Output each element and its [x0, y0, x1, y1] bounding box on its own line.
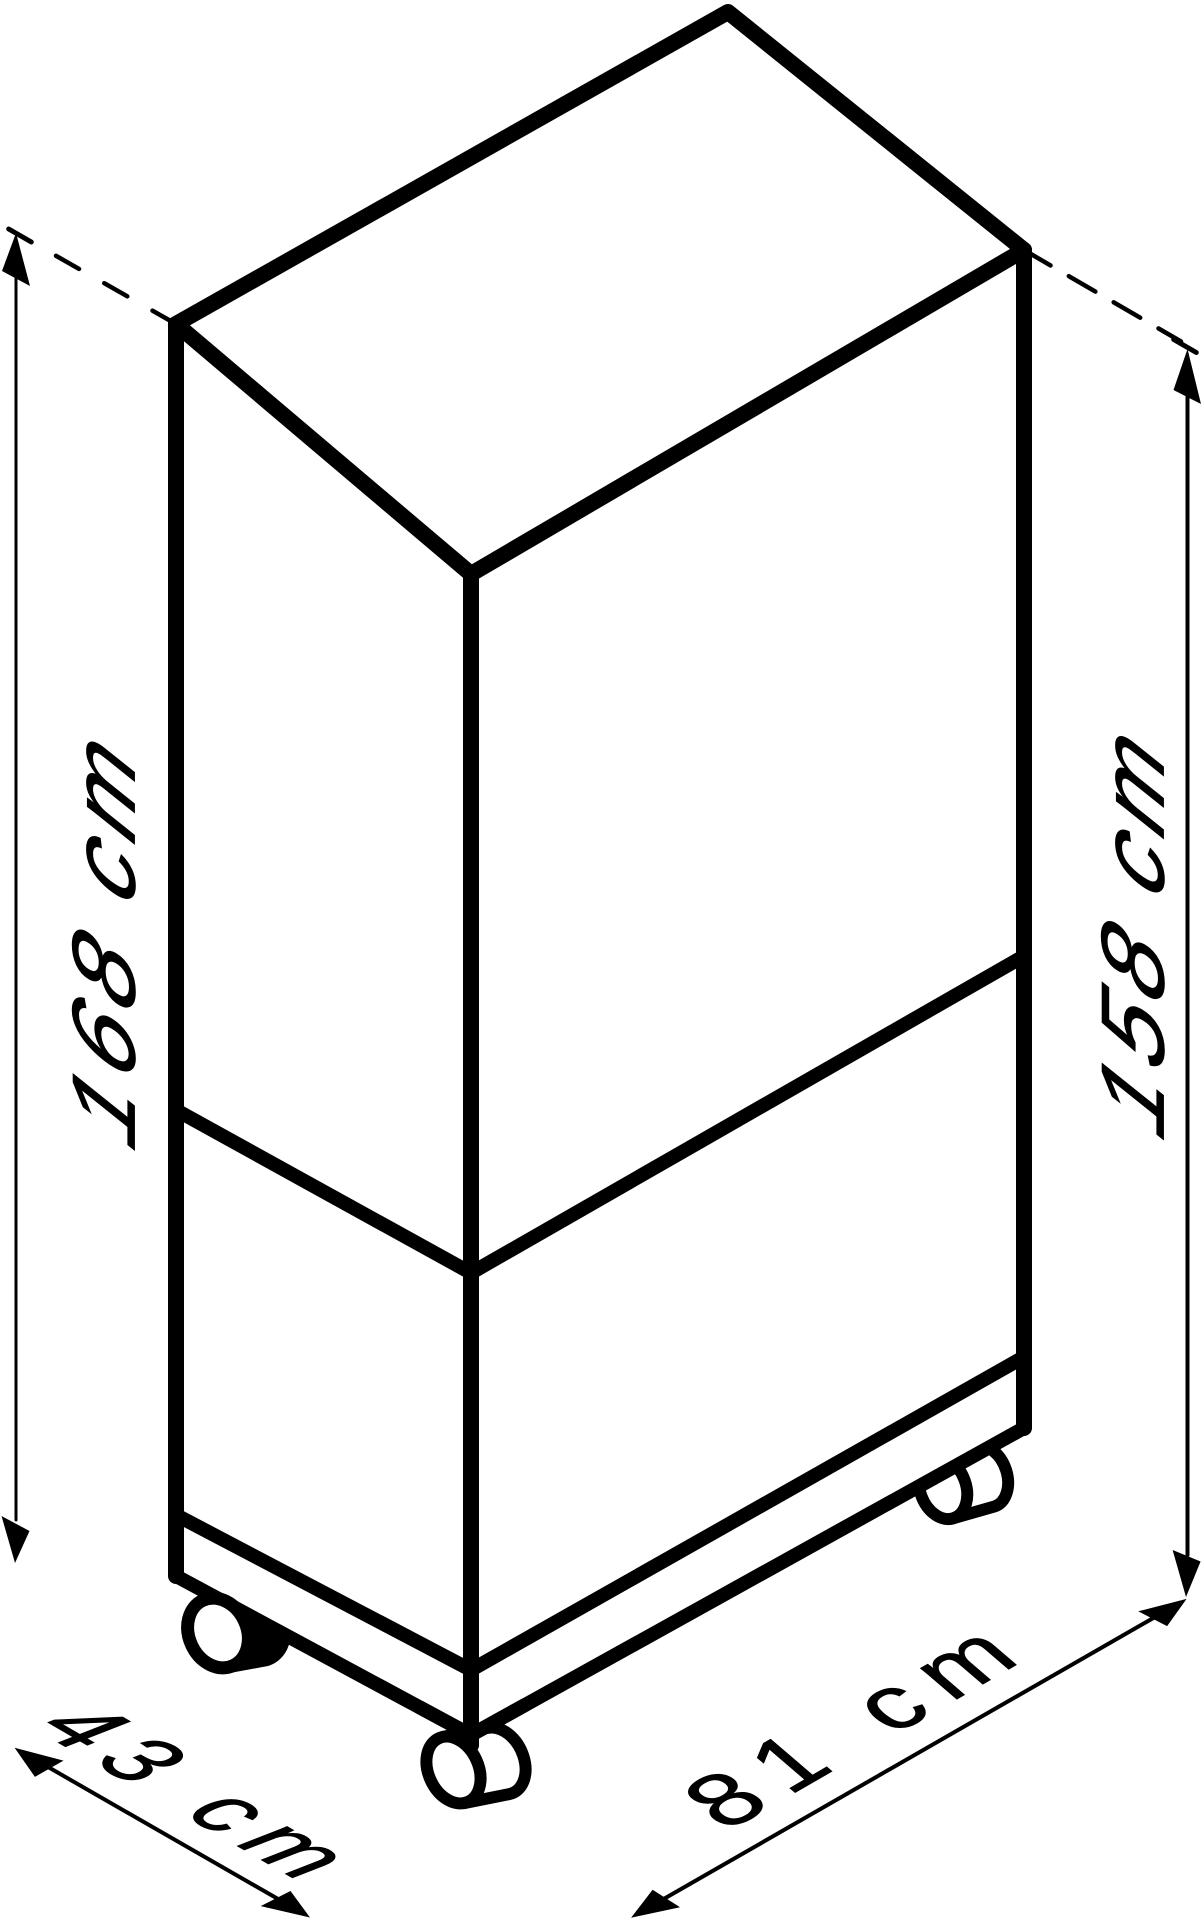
svg-text:158 cm: 158 cm [1083, 698, 1183, 1153]
svg-text:168 cm: 168 cm [54, 703, 154, 1164]
